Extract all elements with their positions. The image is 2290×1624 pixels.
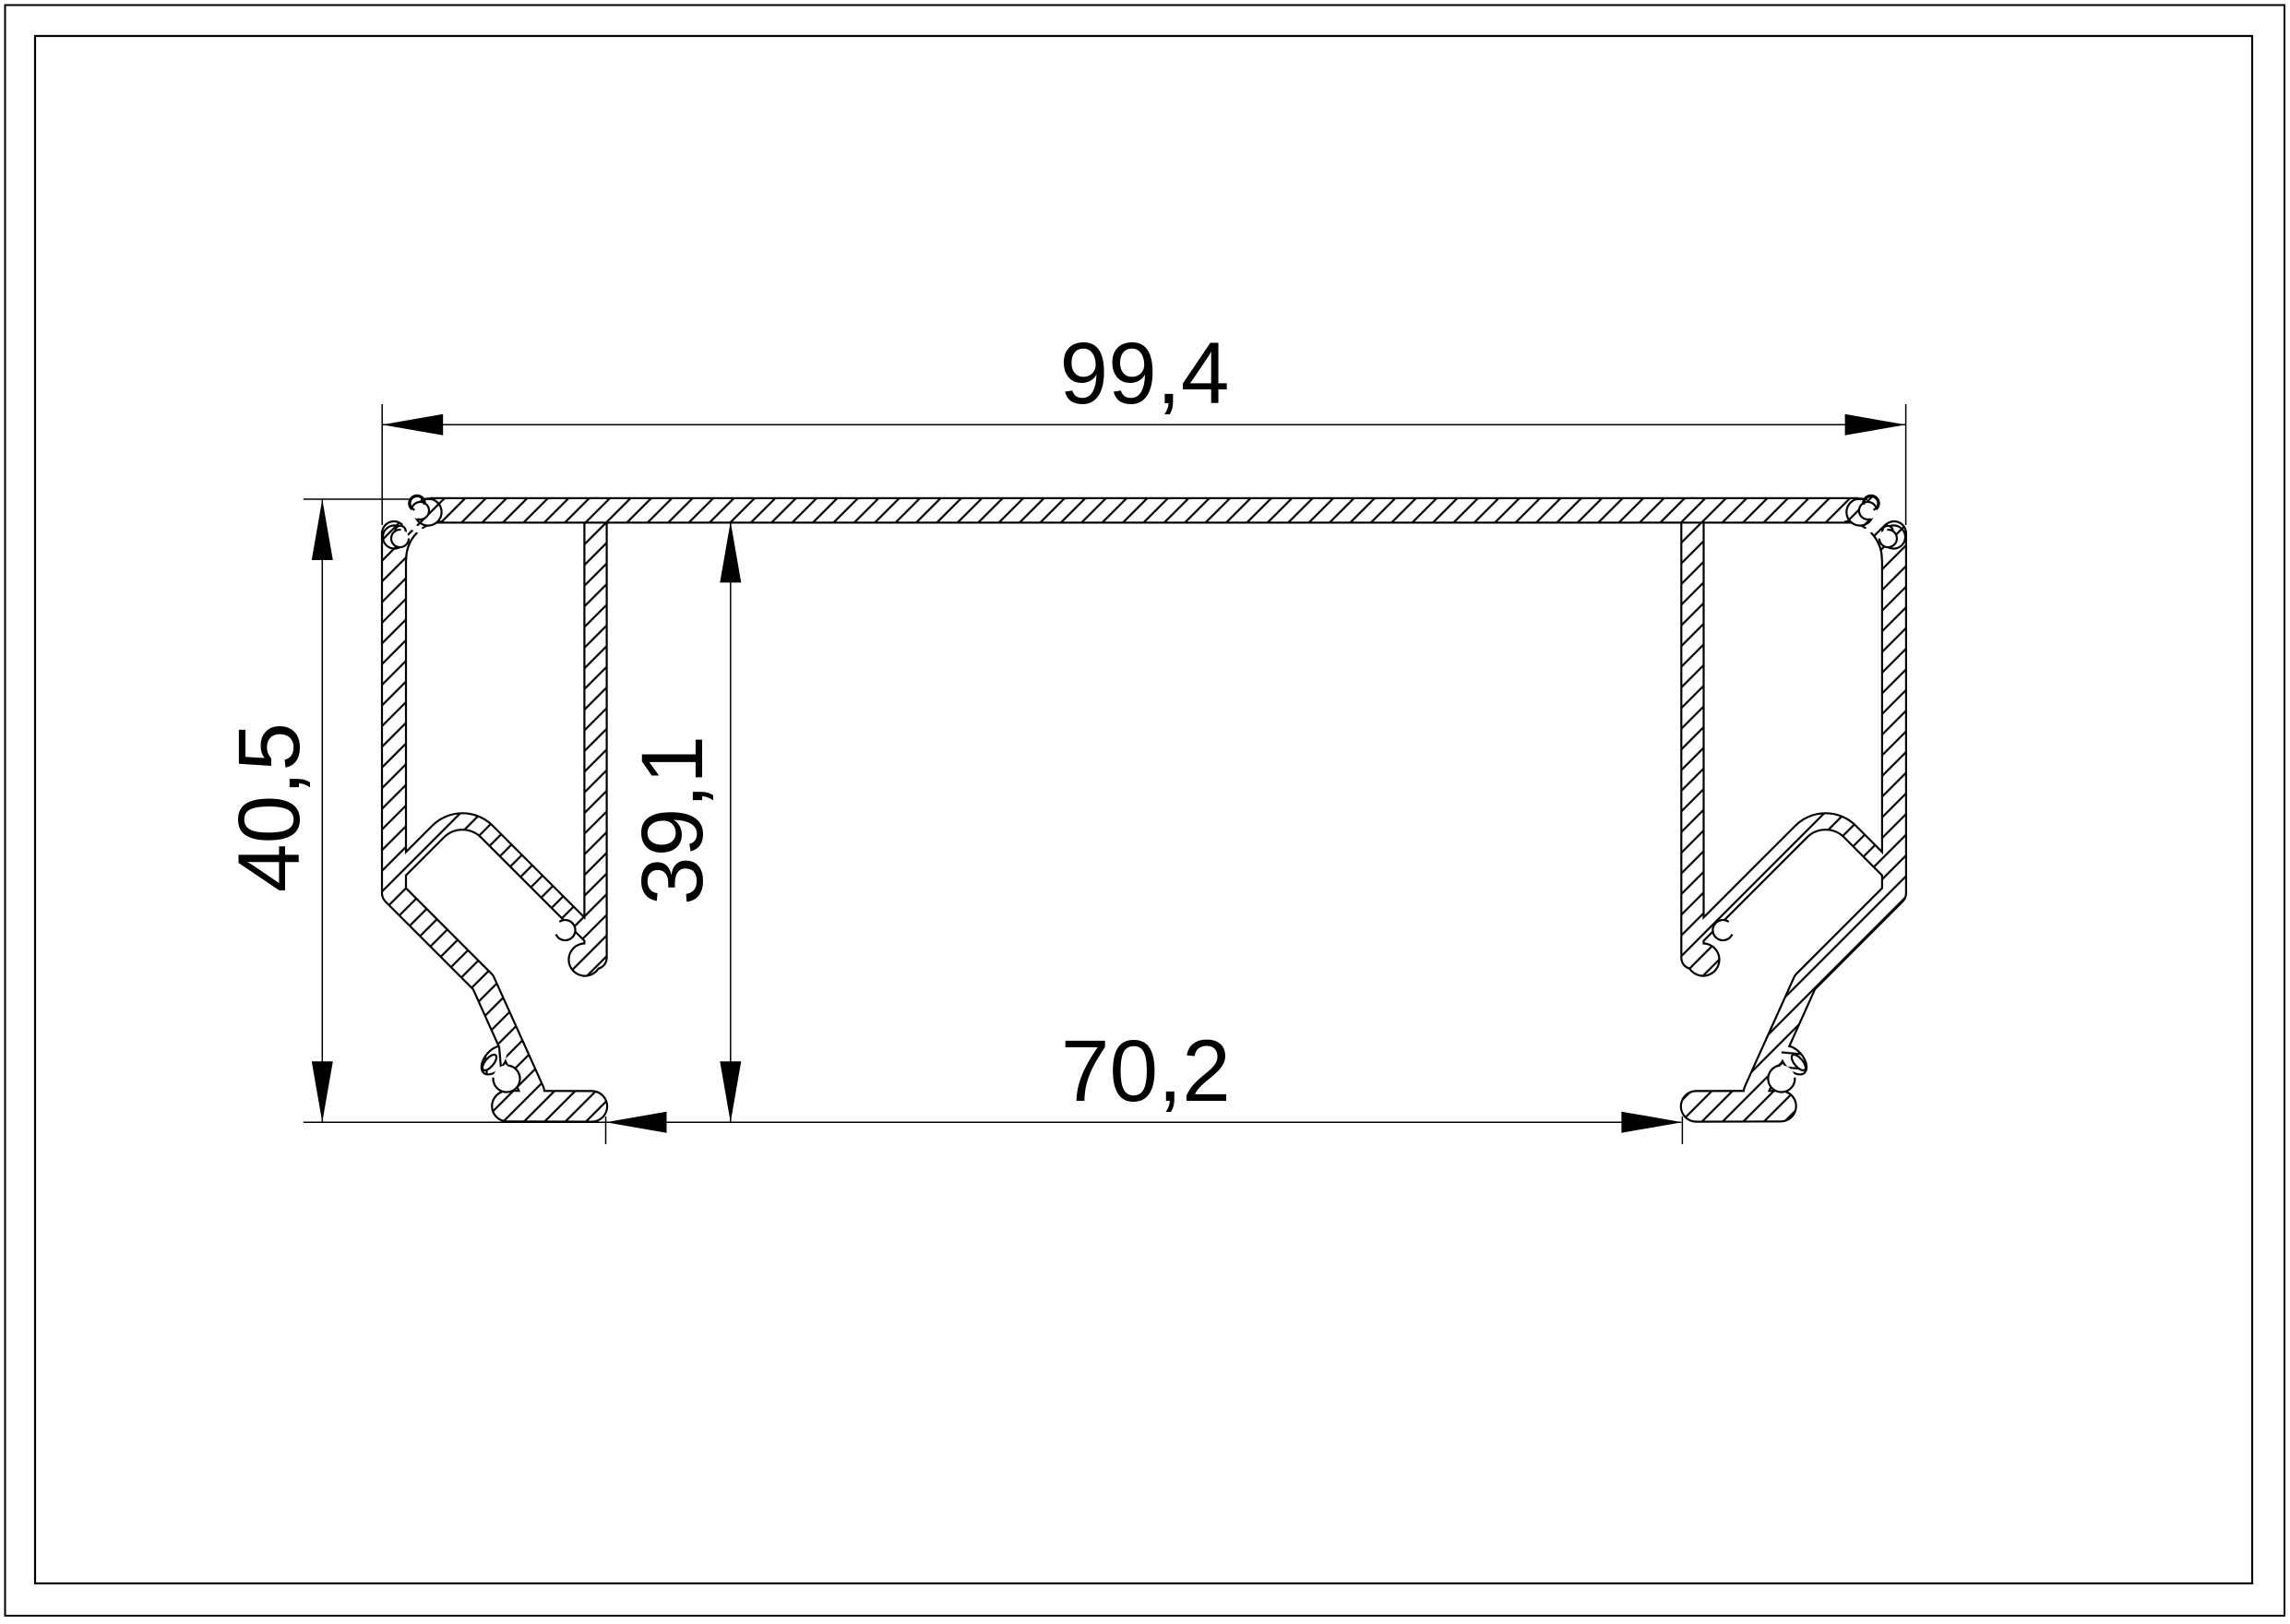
svg-text:99,4: 99,4 (1060, 325, 1230, 423)
svg-text:39,1: 39,1 (624, 735, 722, 905)
svg-text:40,5: 40,5 (221, 722, 318, 892)
svg-text:70,2: 70,2 (1061, 1022, 1231, 1120)
